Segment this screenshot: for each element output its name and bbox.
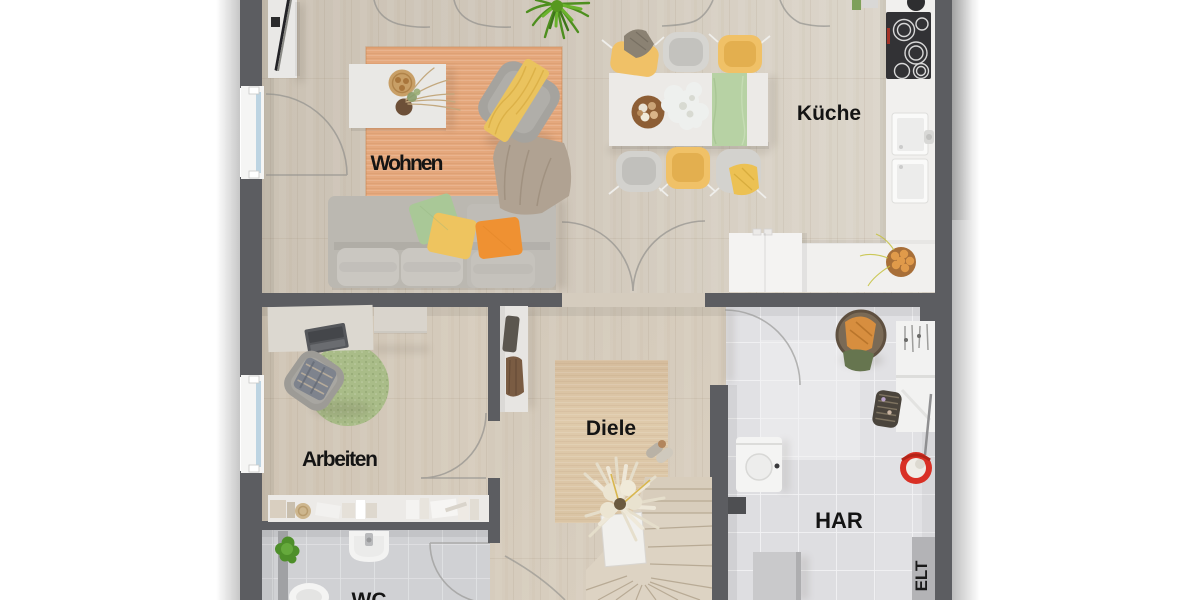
svg-text:HAR: HAR — [815, 508, 863, 533]
svg-text:ELT: ELT — [912, 560, 931, 591]
svg-text:Arbeiten: Arbeiten — [302, 448, 378, 471]
svg-text:Diele: Diele — [586, 417, 636, 440]
svg-text:Küche: Küche — [797, 102, 861, 125]
svg-text:WC: WC — [352, 589, 387, 600]
svg-text:Wohnen: Wohnen — [371, 152, 444, 175]
